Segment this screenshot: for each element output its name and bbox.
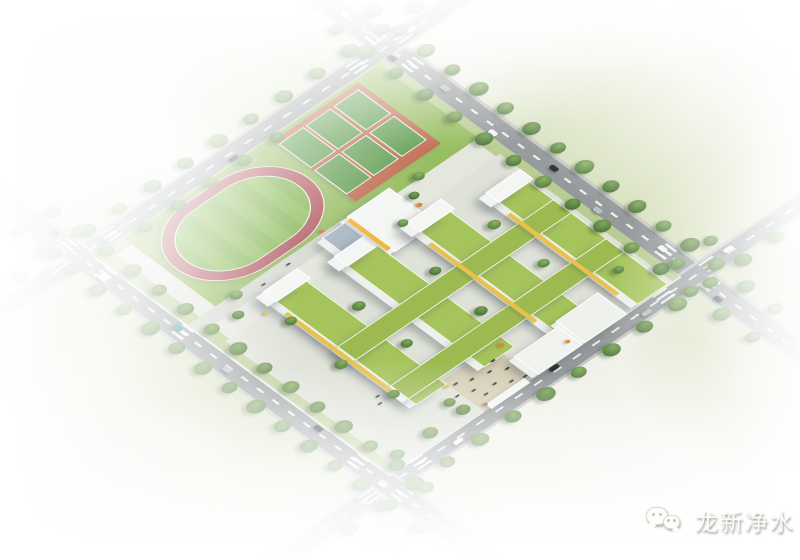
street-tree (599, 178, 623, 195)
watermark-text: 龙新净水 (695, 503, 795, 537)
street-tree (547, 139, 570, 155)
aerial-campus-rendering: 龙新净水 (0, 0, 800, 560)
wechat-icon (646, 504, 686, 536)
campus-plane (95, 58, 680, 474)
street-tree (42, 204, 65, 220)
street-tree (493, 100, 517, 117)
street-tree (652, 217, 675, 233)
street-tree (441, 61, 464, 77)
street-tree (764, 300, 787, 316)
fog-overlay (680, 420, 800, 560)
street-tree (700, 233, 721, 248)
watermark: 龙新净水 (646, 503, 795, 537)
